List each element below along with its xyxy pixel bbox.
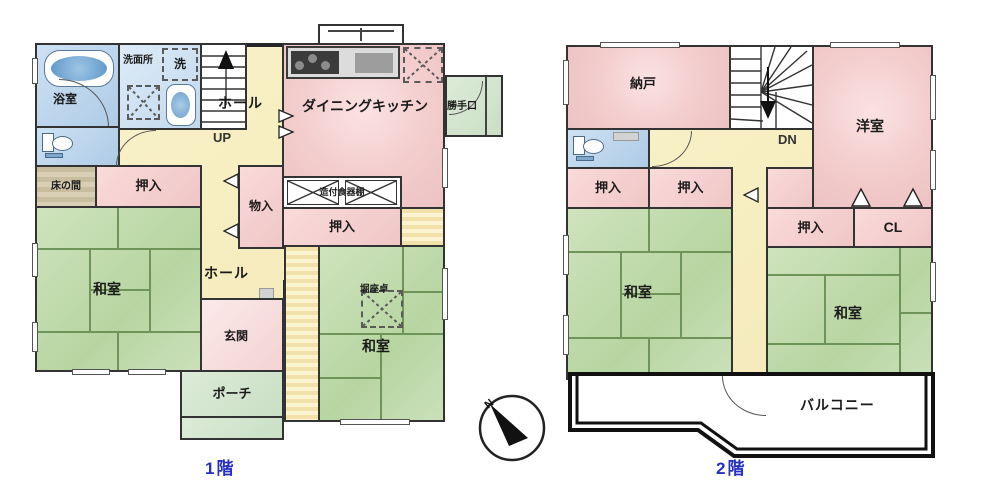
- tatami-line: [402, 291, 443, 293]
- washitsu-label: 和室: [362, 339, 390, 354]
- up-arrow: [218, 50, 234, 69]
- window: [340, 419, 410, 425]
- washroom-label: 洗面所: [123, 55, 153, 66]
- laundry-space: 洗: [162, 48, 198, 81]
- window: [32, 243, 38, 277]
- stove: [291, 51, 339, 74]
- room-bath: 浴室: [35, 43, 120, 130]
- burner: [295, 61, 304, 70]
- katteguchi-label: 勝手口: [447, 101, 477, 112]
- window: [563, 60, 569, 105]
- washitsu-label: 和室: [624, 285, 652, 300]
- tatami-line: [117, 208, 119, 248]
- kitchen-counter: [286, 46, 400, 79]
- room-tokonoma: 床の間: [35, 165, 97, 208]
- compass-needle: [490, 404, 528, 446]
- tatami-line: [768, 274, 900, 276]
- room-monoire: 物入: [238, 165, 284, 249]
- porch: ポーチ: [180, 370, 284, 418]
- tatami-line: [568, 337, 731, 339]
- room-genkan: 玄関: [200, 298, 284, 372]
- tatami-line: [768, 343, 900, 345]
- cl-label: CL: [884, 220, 903, 235]
- stairs-2f-drawing: [731, 47, 812, 128]
- window: [72, 369, 110, 375]
- horizataku-table: [361, 290, 403, 328]
- monoire-door-markers: [222, 172, 240, 242]
- dk-label: ダイニングキッチン: [290, 99, 440, 114]
- hall-lower-label: ホール: [204, 266, 249, 281]
- builtin-cupboard: 造付食器棚: [282, 176, 402, 209]
- room-washitsu-2f-right: 和室: [766, 246, 933, 380]
- toilet-bowl: [52, 136, 73, 151]
- room-nando: 納戸: [566, 45, 731, 130]
- room-oshiire-1f-left: 押入: [95, 165, 202, 208]
- room-oshiire-1f-center: 押入: [282, 207, 402, 247]
- washitsu-label: 和室: [834, 306, 862, 321]
- stairs-1f: [200, 43, 247, 130]
- kitchen-sink: [355, 53, 393, 73]
- x-mark: [129, 87, 158, 118]
- nando-label: 納戸: [630, 77, 656, 91]
- porch-step: [180, 416, 284, 440]
- toilet-base: [576, 156, 594, 161]
- window: [442, 268, 448, 320]
- up-label: UP: [213, 131, 231, 145]
- tatami-line: [899, 312, 931, 314]
- window: [930, 150, 936, 190]
- window: [128, 369, 166, 375]
- closet-upper-right: [766, 167, 814, 209]
- washitsu-label: 和室: [93, 282, 121, 297]
- yoshitsu-label: 洋室: [856, 119, 884, 134]
- laundry-label: 洗: [164, 50, 196, 79]
- x-mark: [405, 49, 441, 81]
- corridor-door-marker: [742, 186, 760, 204]
- cupboard-label: 造付食器棚: [284, 178, 400, 207]
- room-oshiire-2f-b: 押入: [648, 167, 733, 209]
- oshiire-label: 押入: [329, 220, 355, 234]
- tatami-line: [37, 331, 200, 333]
- stairs-2f: [729, 45, 814, 130]
- room-cl: CL: [853, 207, 933, 249]
- oshiire-label: 押入: [135, 179, 161, 193]
- stairs-1f-drawing: [202, 45, 245, 128]
- room-washroom: 洗面所 洗: [118, 43, 202, 130]
- kitchen-bay-window: [318, 24, 404, 45]
- dn-label: DN: [778, 133, 797, 147]
- tokonoma-label: 床の間: [37, 167, 95, 206]
- window: [563, 315, 569, 355]
- room-toilet-2f: [566, 128, 650, 169]
- oshiire-label: 押入: [595, 181, 621, 195]
- refrigerator-space: [403, 47, 443, 83]
- porch-label: ポーチ: [212, 387, 251, 401]
- window: [563, 235, 569, 275]
- oshiire-label: 押入: [677, 181, 703, 195]
- window: [32, 322, 38, 352]
- wash-basin: [166, 84, 196, 126]
- down-arrow: [760, 101, 776, 119]
- window: [442, 148, 448, 188]
- bathtub-water: [51, 56, 107, 81]
- compass: N: [468, 386, 556, 470]
- window: [930, 75, 936, 120]
- room-washitsu-2f-left: 和室: [566, 207, 733, 380]
- x-mark: [363, 292, 401, 326]
- room-oshiire-2f-a: 押入: [566, 167, 650, 209]
- toilet-bowl: [583, 139, 604, 154]
- floor2-label: 2階: [716, 454, 746, 479]
- window: [930, 262, 936, 302]
- room-washitsu-1f-left: 和室: [35, 206, 202, 372]
- bay-window-mullion: [360, 28, 362, 41]
- katteguchi-step-line: [485, 77, 487, 135]
- floor1-label: 1階: [205, 454, 235, 479]
- burner: [308, 54, 317, 63]
- balcony-label: バルコニー: [800, 398, 875, 413]
- tatami-line: [320, 377, 380, 379]
- washroom-x-space: [127, 85, 160, 120]
- burner: [321, 61, 330, 70]
- hall-upper-label: ホール: [218, 96, 263, 111]
- window: [830, 42, 900, 48]
- genkan-label: 玄関: [224, 330, 248, 343]
- tatami-line: [320, 333, 443, 335]
- window: [600, 42, 680, 48]
- engawa-strip: [284, 245, 320, 422]
- bathtub: [44, 50, 114, 87]
- tatami-line: [117, 331, 119, 370]
- tatami-line: [37, 248, 200, 250]
- toilet-base: [45, 153, 63, 158]
- tatami-line: [824, 274, 826, 344]
- wash-basin-bowl: [171, 92, 190, 118]
- floor-plan-canvas: 勝手口 浴室 洗面所 洗: [0, 0, 987, 503]
- monoire-label: 物入: [249, 200, 273, 213]
- oshiire-label: 押入: [797, 221, 823, 235]
- engawa-corner: [400, 207, 445, 247]
- window: [32, 58, 38, 84]
- room-washitsu-1f-right: 和室: [318, 245, 445, 422]
- dk-door-markers: [277, 108, 295, 142]
- horizataku-label: 堀座卓: [360, 285, 389, 295]
- tatami-line: [568, 251, 731, 253]
- room-toilet-1f: [35, 126, 120, 167]
- room-oshiire-2f-c: 押入: [766, 207, 855, 249]
- toilet-counter: [613, 132, 639, 141]
- yoshitsu-closet-door-markers: [848, 186, 928, 208]
- tatami-line: [648, 209, 650, 251]
